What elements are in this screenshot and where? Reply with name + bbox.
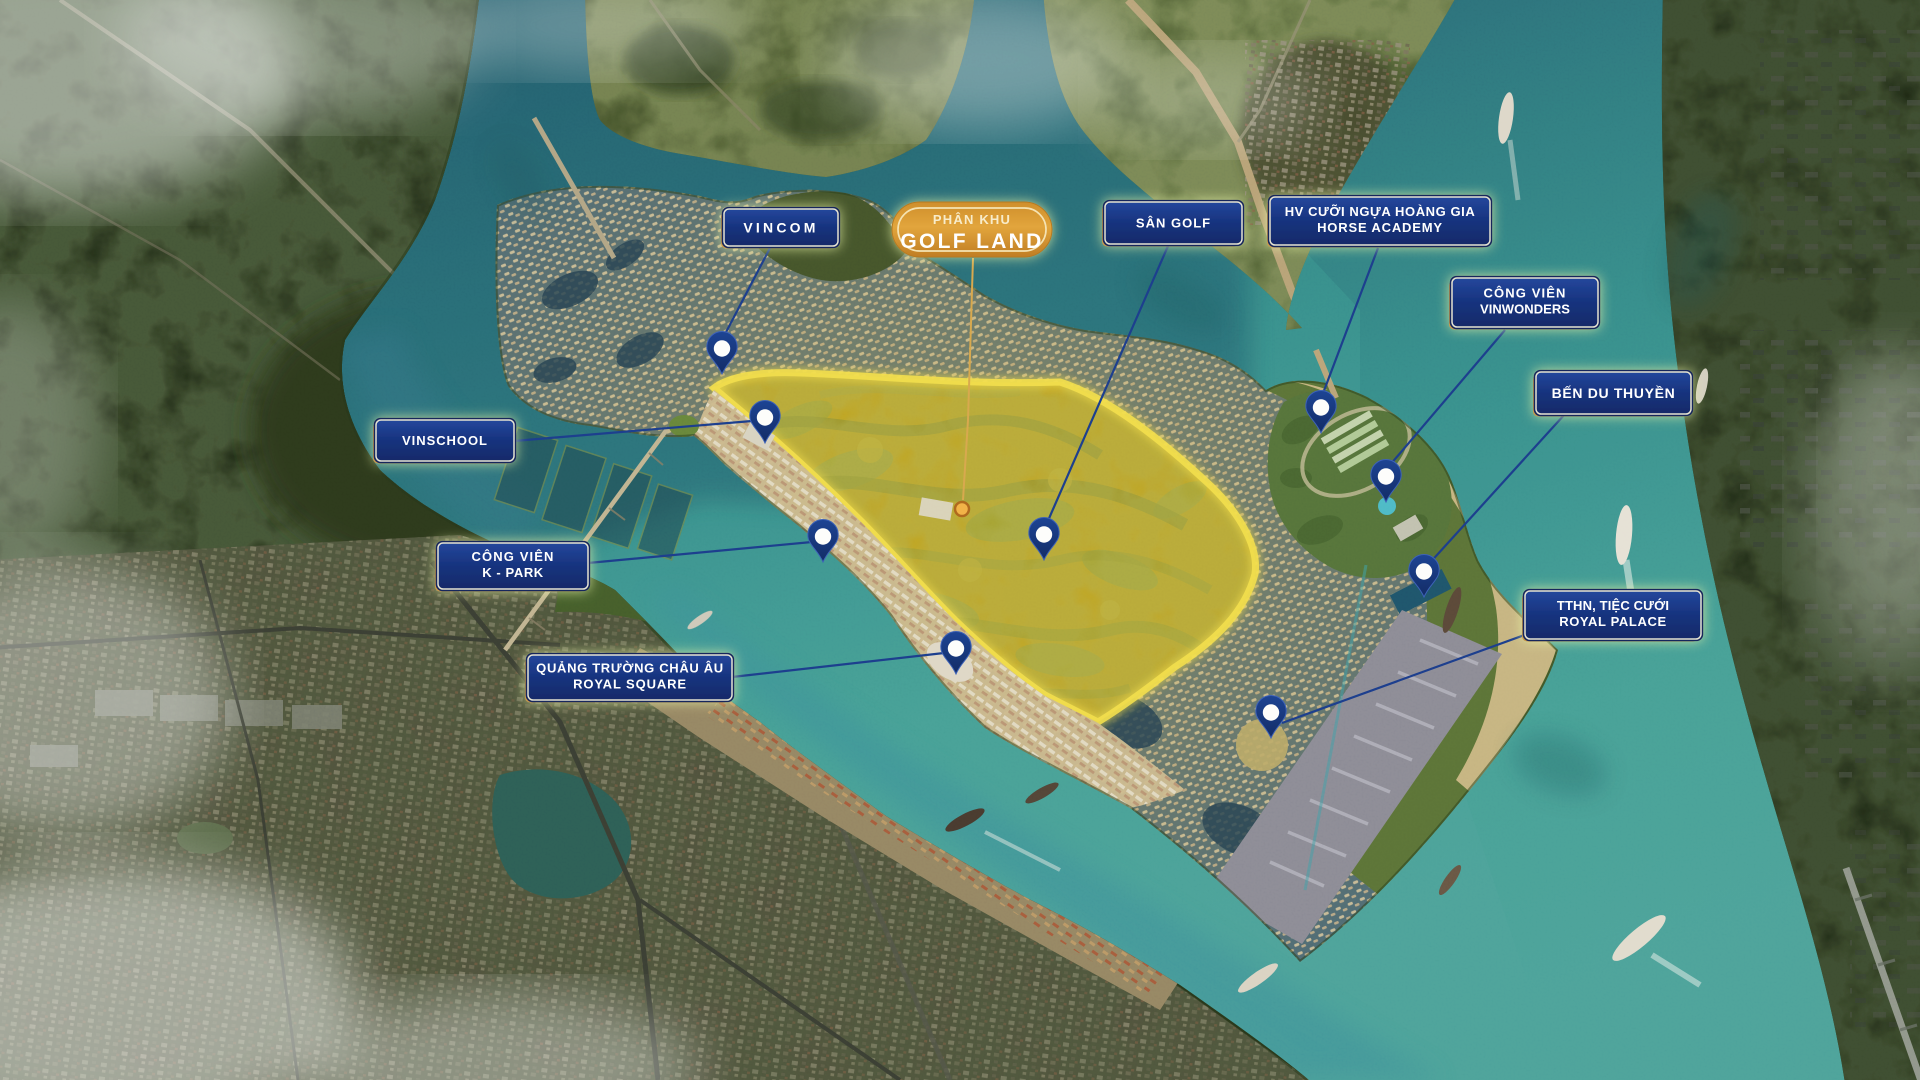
- svg-text:TTHN, TIỆC CƯỚI: TTHN, TIỆC CƯỚI: [1557, 598, 1669, 613]
- svg-text:CÔNG VIÊN: CÔNG VIÊN: [471, 549, 554, 564]
- svg-text:ROYAL SQUARE: ROYAL SQUARE: [573, 677, 687, 692]
- svg-text:SÂN GOLF: SÂN GOLF: [1136, 216, 1211, 231]
- svg-text:PHÂN KHU: PHÂN KHU: [933, 212, 1011, 227]
- svg-text:HORSE ACADEMY: HORSE ACADEMY: [1317, 220, 1443, 235]
- svg-text:VINWONDERS: VINWONDERS: [1480, 302, 1570, 317]
- svg-text:QUẢNG TRƯỜNG CHÂU ÂU: QUẢNG TRƯỜNG CHÂU ÂU: [536, 661, 724, 676]
- svg-text:ROYAL PALACE: ROYAL PALACE: [1559, 614, 1667, 629]
- svg-text:K - PARK: K - PARK: [482, 565, 544, 580]
- svg-text:GOLF LAND: GOLF LAND: [900, 230, 1043, 253]
- svg-text:HV CƯỠI NGỰA HOÀNG GIA: HV CƯỠI NGỰA HOÀNG GIA: [1285, 204, 1476, 219]
- svg-text:BẾN DU THUYỀN: BẾN DU THUYỀN: [1552, 385, 1676, 401]
- svg-text:VINCOM: VINCOM: [743, 219, 818, 235]
- svg-text:VINSCHOOL: VINSCHOOL: [402, 433, 488, 448]
- svg-text:CÔNG VIÊN: CÔNG VIÊN: [1483, 286, 1566, 301]
